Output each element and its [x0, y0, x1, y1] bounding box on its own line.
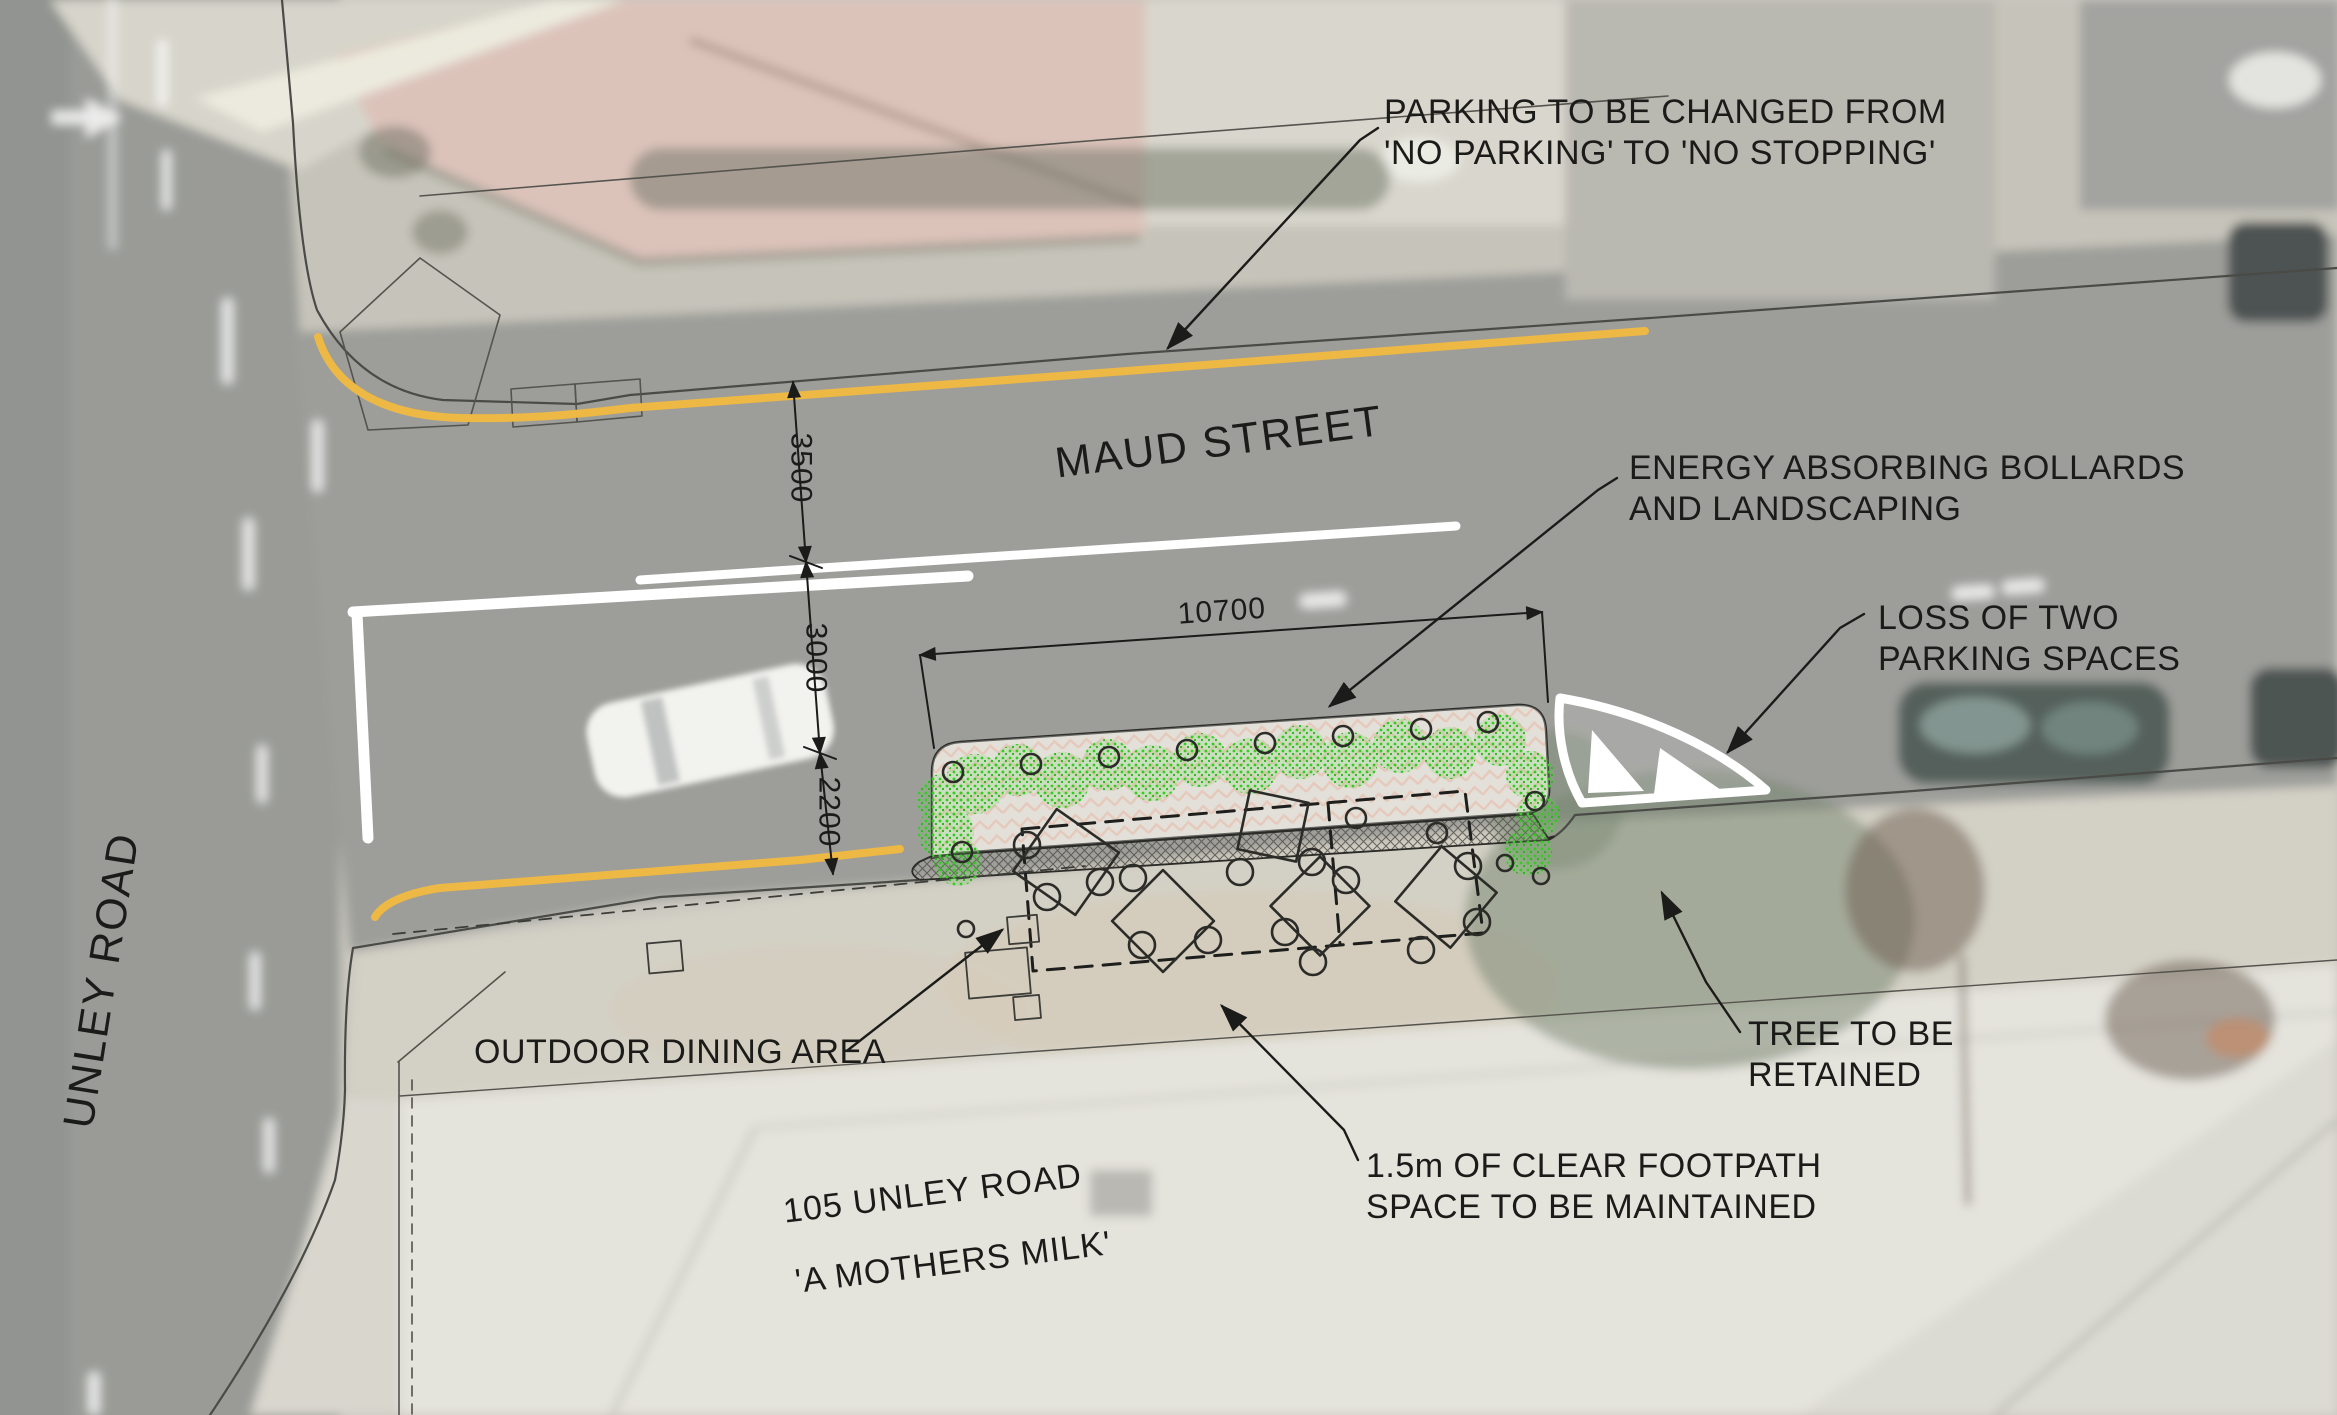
- annotation-parking-change: PARKING TO BE CHANGED FROM 'NO PARKING' …: [1384, 92, 1947, 175]
- photo-tree-brown: [1845, 808, 1985, 972]
- photo-tree-nw1: [359, 126, 431, 178]
- dim-label-3000: 3000: [797, 623, 834, 694]
- plan-drawing: [0, 0, 2337, 1415]
- photo-unley-west-edge: [0, 0, 70, 1415]
- photo-car-glass-1: [1920, 697, 2030, 753]
- photo-tree-nw2: [412, 210, 468, 254]
- photo-white-car-ne: [2229, 52, 2321, 108]
- photo-dark-car-2: [2250, 668, 2337, 768]
- site-plan-canvas: PARKING TO BE CHANGED FROM 'NO PARKING' …: [0, 0, 2337, 1415]
- photo-hedge: [630, 148, 1390, 210]
- photo-building-ne: [2080, 0, 2337, 210]
- annotation-footpath: 1.5m OF CLEAR FOOTPATH SPACE TO BE MAINT…: [1366, 1146, 1822, 1229]
- dim-label-3500: 3500: [782, 433, 819, 504]
- annotation-outdoor-dining: OUTDOOR DINING AREA: [474, 1032, 886, 1073]
- aerial-photo-layer: [0, 0, 2337, 1415]
- photo-roof-vent: [1090, 1170, 1152, 1216]
- dim-label-2200: 2200: [810, 777, 847, 848]
- annotation-parking-loss: LOSS OF TWO PARKING SPACES: [1878, 598, 2180, 681]
- annotation-tree: TREE TO BE RETAINED: [1748, 1014, 1954, 1097]
- dim-label-10700: 10700: [1177, 591, 1268, 634]
- photo-car-glass-2: [2042, 702, 2138, 754]
- annotation-bollards: ENERGY ABSORBING BOLLARDS AND LANDSCAPIN…: [1629, 448, 2185, 531]
- photo-orange-object: [2206, 1018, 2270, 1058]
